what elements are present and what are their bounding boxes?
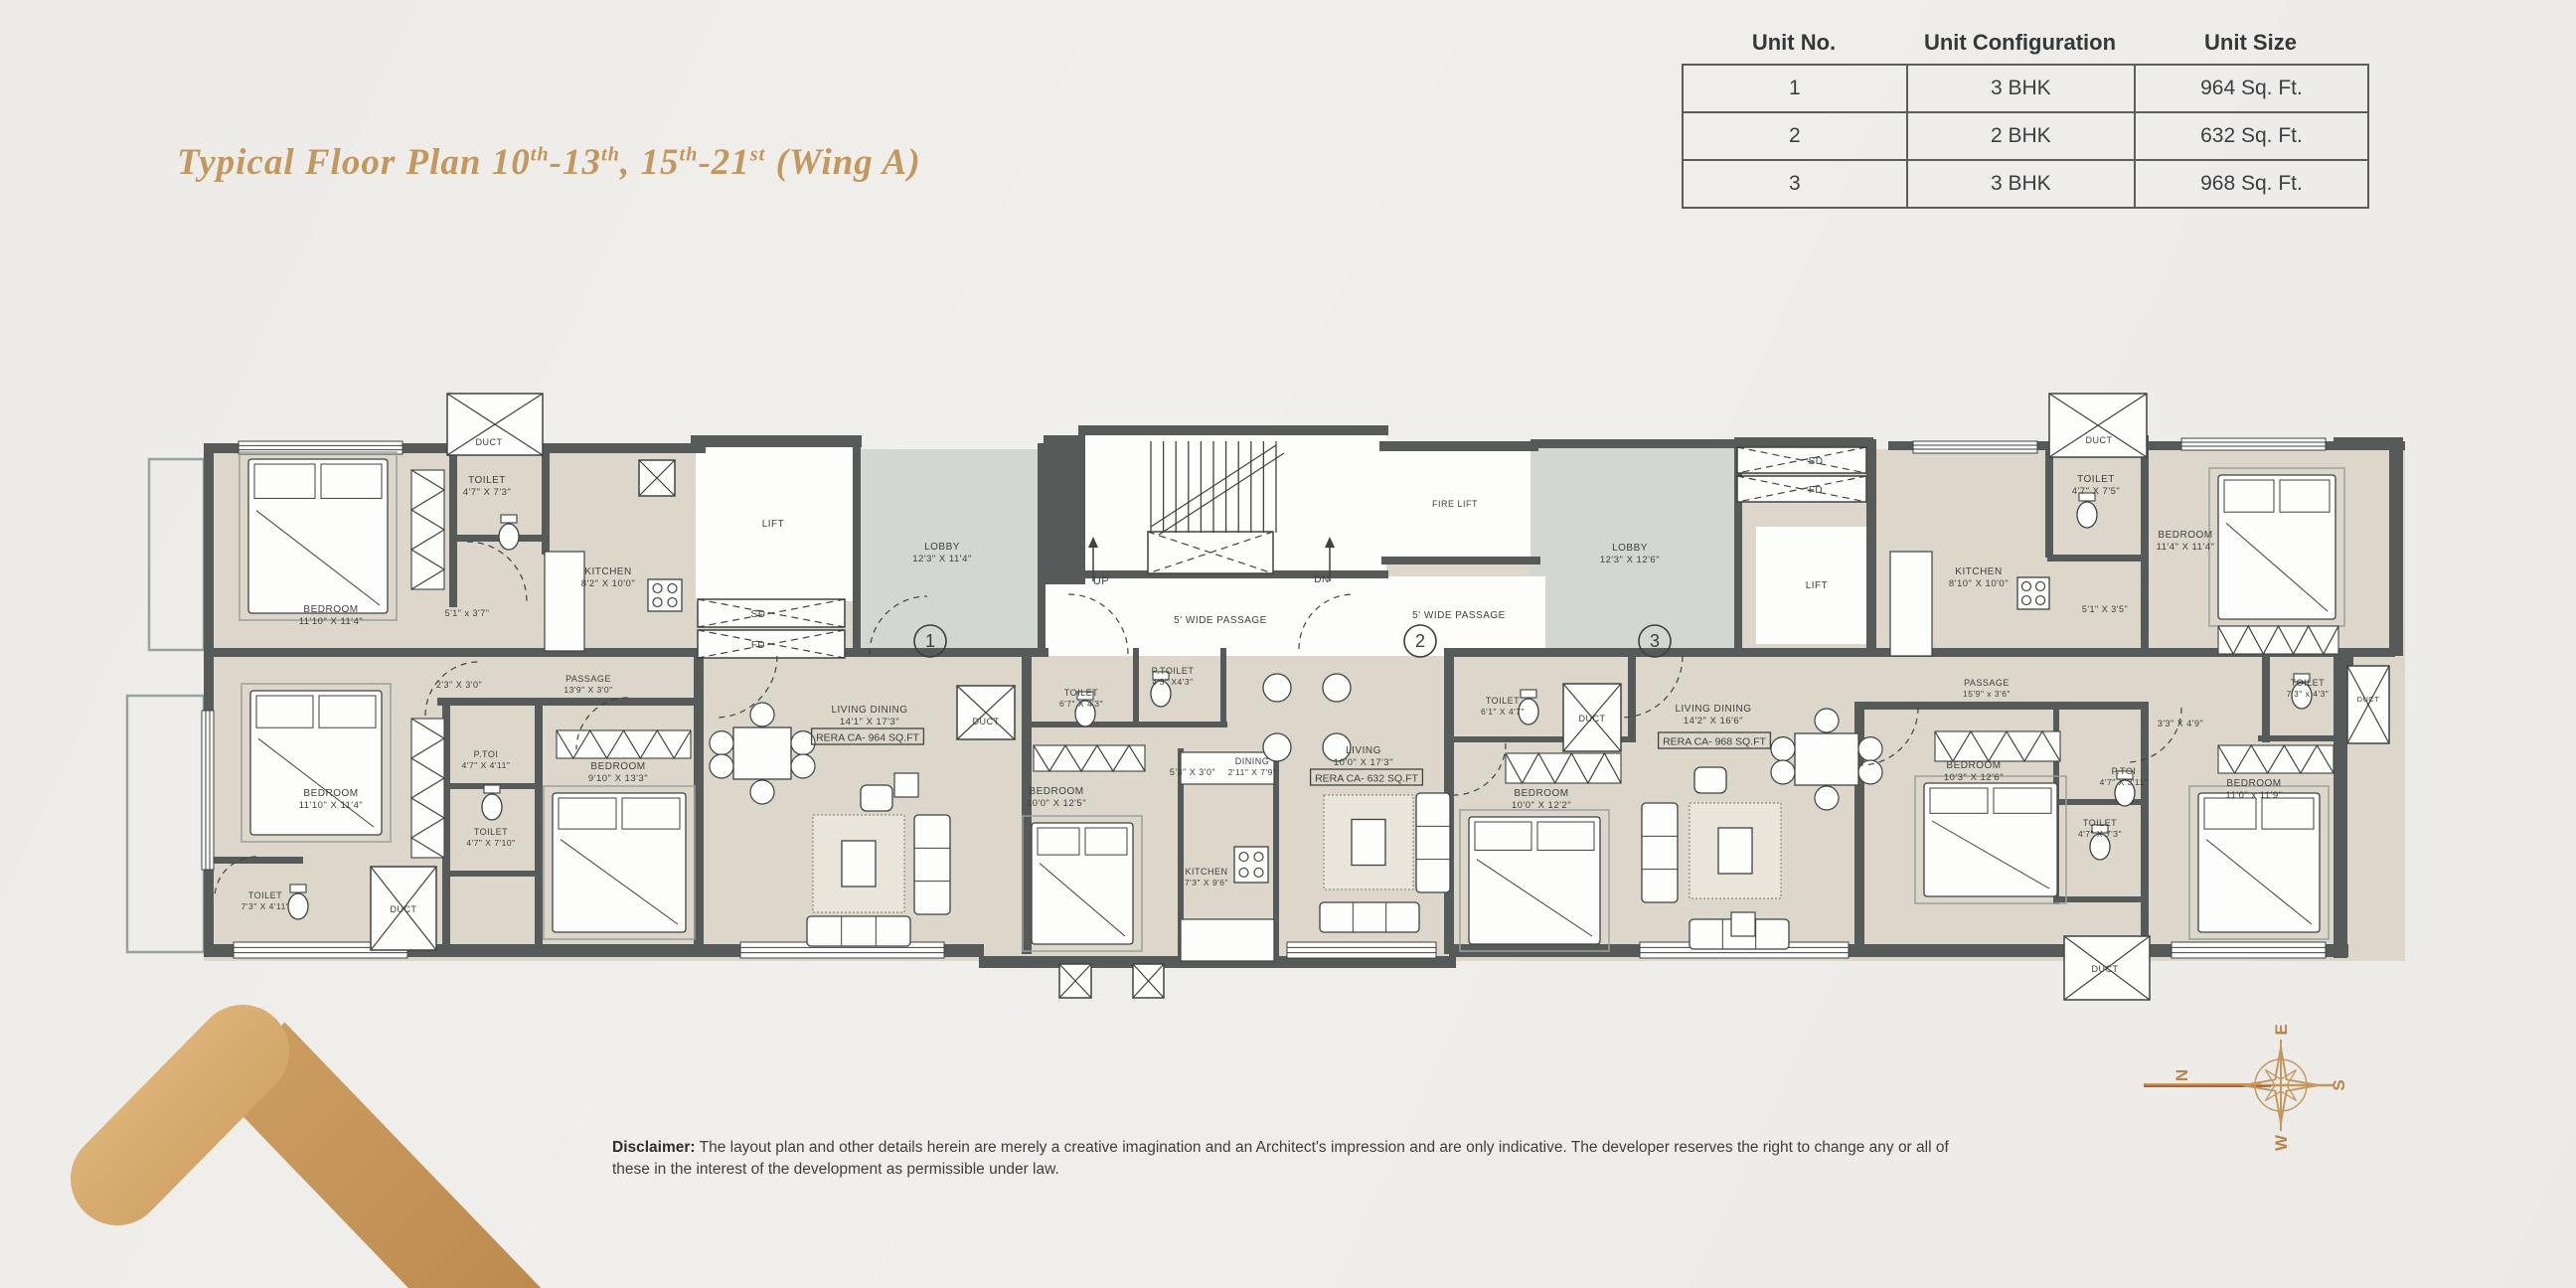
room-label: 4'7" X 7'5" <box>2072 486 2121 497</box>
room-label: FD <box>751 640 765 651</box>
room-label: SD <box>751 609 766 620</box>
compass-icon: ESWN <box>2144 1024 2348 1151</box>
room-label: DUCT <box>2357 695 2380 704</box>
room-label: BEDROOM <box>2226 778 2281 789</box>
disclaimer-text: The layout plan and other details herein… <box>612 1139 1949 1178</box>
room-label: 3'3" X 4'9" <box>2158 719 2203 728</box>
room-label: 7'3" x 4'3" <box>2287 689 2330 699</box>
room-label: LOBBY <box>924 542 960 553</box>
room-label: BEDROOM <box>1514 788 1568 799</box>
floor-plan-svg: DUCTTOILET4'7" X 7'3"BEDROOM11'10" X 11'… <box>0 0 2576 1288</box>
room-label: TOILET <box>2077 474 2115 485</box>
room-label: 8'2" X 10'0" <box>581 578 635 589</box>
room-label: 11'4" X 11'4" <box>2157 542 2215 553</box>
room-label: 5'1" x 3'7" <box>445 608 490 618</box>
room-label: TOILET <box>468 475 506 486</box>
room-label: 2'11" X 7'9" <box>1228 767 1277 777</box>
room-label: 14'2" X 16'6" <box>1684 716 1743 726</box>
room-label: PASSAGE <box>1964 678 2010 688</box>
room-label: DN <box>1314 574 1329 585</box>
room-label: 11'0" x 11'9" <box>2225 790 2282 801</box>
room-label: 2'3" X 3'0" <box>436 680 482 690</box>
room-label: BEDROOM <box>303 604 358 615</box>
room-label: 7'3" X 4'11" <box>241 901 290 911</box>
unit-number: 3 <box>1650 631 1660 651</box>
room-label: 5' WIDE PASSAGE <box>1174 615 1267 626</box>
room-label: DUCT <box>391 904 417 914</box>
room-label: P.TOI <box>2112 766 2137 776</box>
room-label: DUCT <box>973 717 1000 726</box>
room-label: 4'7" X 3'11" <box>2100 777 2149 787</box>
room-label: 5'1" X 3'5" <box>2082 604 2128 614</box>
rera-area-label: RERA CA- 968 SQ.FT <box>1663 736 1766 748</box>
room-label: BEDROOM <box>2158 530 2212 541</box>
unit-number: 1 <box>925 631 935 651</box>
room-label: BEDROOM <box>1946 760 2001 771</box>
room-label: 7'3" X 9'6" <box>1185 878 1228 887</box>
room-label: 8'10" X 10'0" <box>1949 578 2009 589</box>
room-label: 12'3" X 11'4" <box>912 554 971 564</box>
room-label: SD <box>1809 456 1824 467</box>
room-label: DUCT <box>1579 714 1606 724</box>
compass-direction-label: W <box>2272 1134 2291 1151</box>
room-label: LOBBY <box>1612 543 1648 554</box>
room-label: 5' WIDE PASSAGE <box>1412 610 1506 621</box>
room-label: TOILET <box>248 890 282 900</box>
room-label: KITCHEN <box>1955 566 2002 577</box>
room-label: PASSAGE <box>565 674 611 684</box>
room-label: 6'1" X 4'7" <box>1481 707 1525 717</box>
room-label: TOILET <box>2083 818 2117 828</box>
room-label: BEDROOM <box>1029 786 1083 797</box>
room-label: 14'1" X 17'3" <box>840 717 899 727</box>
room-label: 4'3" X4'3" <box>1152 677 1193 687</box>
room-label: DUCT <box>2092 964 2119 974</box>
room-label: P.TOILET <box>1152 666 1195 676</box>
room-label: 9'10" X 13'3" <box>588 773 648 784</box>
room-label: 10'3" X 12'6" <box>1944 772 2004 783</box>
brochure-page: Typical Floor Plan 10th-13th, 15th-21st … <box>0 0 2576 1288</box>
room-label: DUCT <box>476 437 503 447</box>
rera-area-label: RERA CA- 632 SQ.FT <box>1315 773 1418 785</box>
compass-direction-label: E <box>2272 1024 2291 1035</box>
floor-slabs <box>204 429 2405 961</box>
room-label: LIVING DINING <box>1675 704 1751 715</box>
rera-area-label: RERA CA- 964 SQ.FT <box>816 732 919 744</box>
room-label: 4'7" X 7'10" <box>466 838 515 848</box>
room-label: BEDROOM <box>590 761 645 772</box>
room-label: LIFT <box>1806 580 1829 591</box>
room-label: KITCHEN <box>1185 867 1227 877</box>
room-label: 4'7" X 4'11" <box>462 760 511 770</box>
room-label: TOILET <box>2291 678 2325 688</box>
room-label: 11'10" X 11'4" <box>299 616 364 627</box>
room-label: 5'3" X 3'0" <box>1170 767 1215 777</box>
room-label: LIVING <box>1346 745 1381 756</box>
room-label: 10'0" X 12'5" <box>1027 798 1086 809</box>
balcony-outline <box>127 459 204 952</box>
room-label: TOILET <box>1486 696 1520 706</box>
room-label: LIFT <box>762 519 785 530</box>
unit-number: 2 <box>1415 631 1425 651</box>
room-label: TOILET <box>1064 688 1098 698</box>
room-label: 11'10" X 11'4" <box>299 800 364 811</box>
room-label: BEDROOM <box>303 788 358 799</box>
room-label: 15'9" x 3'6" <box>1963 689 2011 699</box>
room-label: FIRE LIFT <box>1432 499 1478 509</box>
room-label: 13'9" X 3'0" <box>563 685 612 695</box>
disclaimer-label: Disclaimer: <box>612 1139 696 1156</box>
brand-logo <box>117 1051 517 1288</box>
room-label: 12'3" X 12'6" <box>1600 555 1660 565</box>
room-label: 6'7" X 4'3" <box>1059 699 1103 709</box>
compass-direction-label: N <box>2173 1069 2191 1081</box>
room-label: FD <box>1809 485 1823 496</box>
room-label: DUCT <box>2086 435 2113 445</box>
room-label: P.TOI <box>474 749 499 759</box>
room-label: 4'7" X 7'3" <box>2078 829 2122 839</box>
room-label: LIVING DINING <box>831 705 907 716</box>
room-label: 10'0" X 17'3" <box>1334 757 1393 768</box>
room-label: KITCHEN <box>584 566 631 577</box>
room-label: 4'7" X 7'3" <box>463 487 512 498</box>
room-label: DINING <box>1235 756 1270 766</box>
floor-plan: DUCTTOILET4'7" X 7'3"BEDROOM11'10" X 11'… <box>0 0 2576 1288</box>
compass-direction-label: S <box>2330 1079 2348 1090</box>
room-label: 10'0" X 12'2" <box>1512 800 1571 811</box>
room-label: UP <box>1093 575 1109 587</box>
disclaimer: Disclaimer: The layout plan and other de… <box>612 1137 1989 1181</box>
room-label: TOILET <box>474 827 508 837</box>
